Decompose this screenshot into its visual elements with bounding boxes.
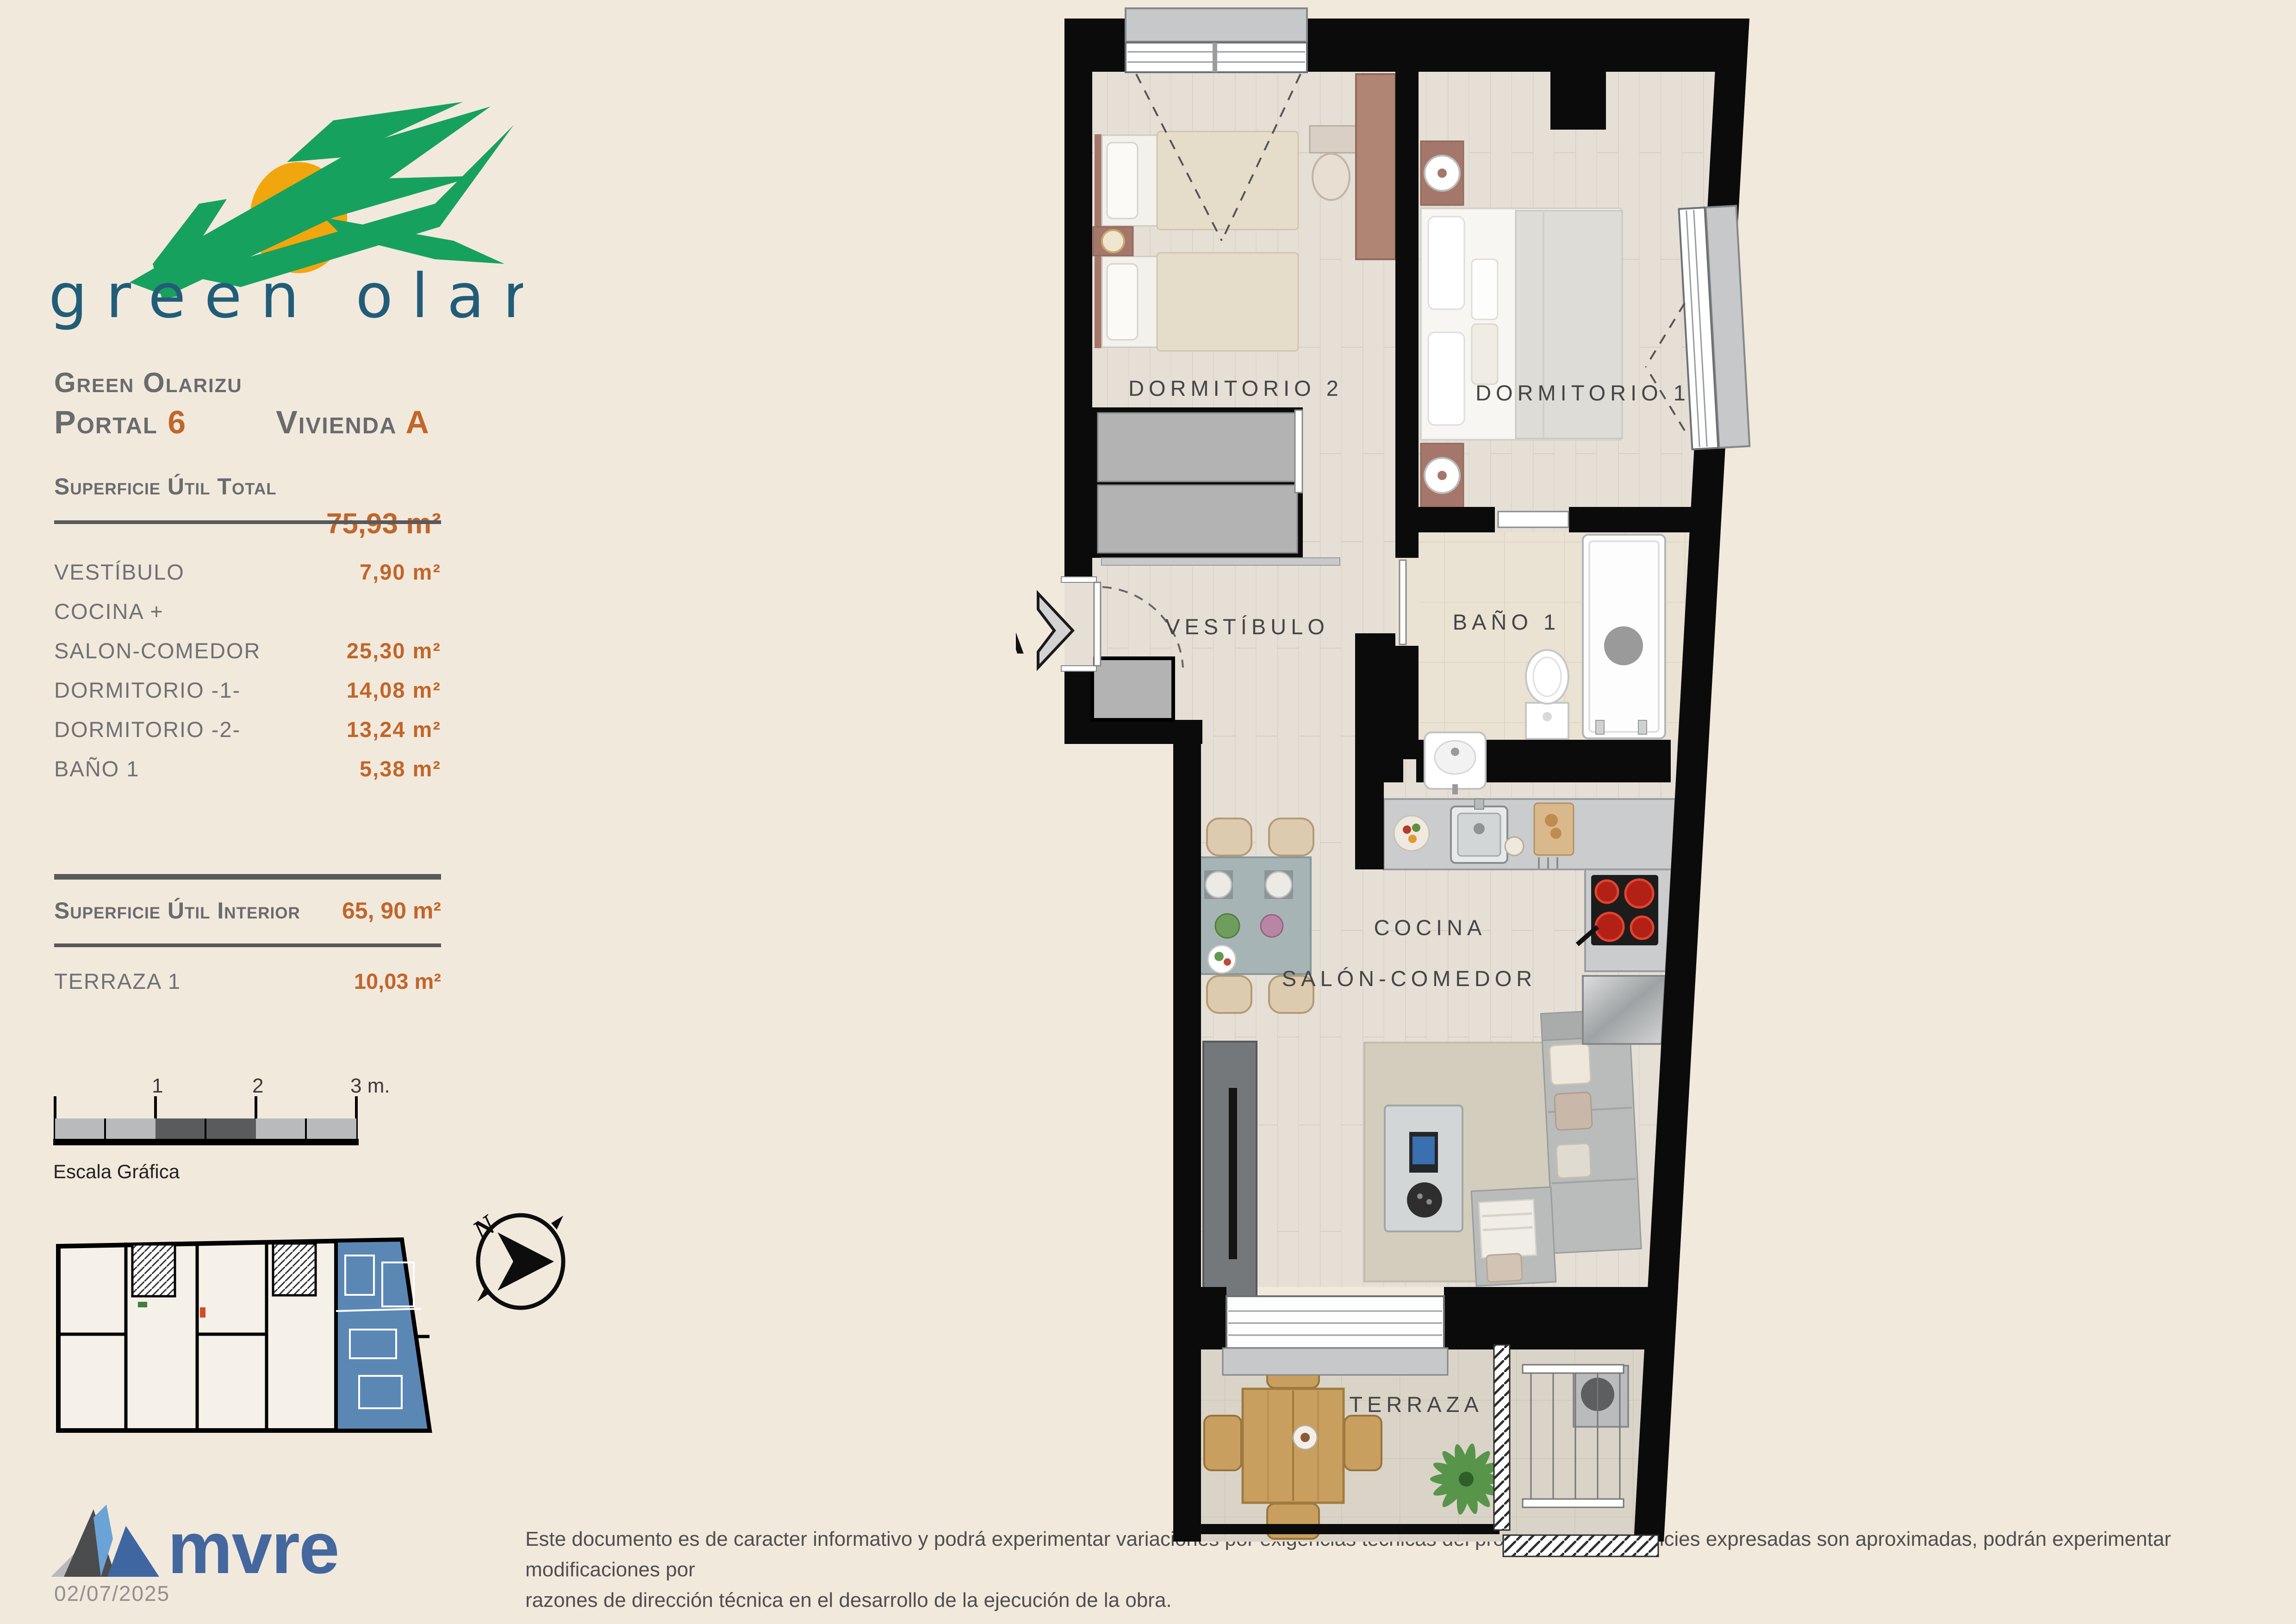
door-mark: [138, 1302, 147, 1307]
floorplan-sheet: { "logo": { "text": "green olarizu" }, "…: [0, 0, 2296, 1624]
vivienda-label: Vivienda: [276, 404, 397, 440]
entry-marker-letter: A: [1016, 614, 1025, 663]
row-label: DORMITORIO -1-: [54, 677, 241, 703]
row-label: BAÑO 1: [54, 756, 139, 781]
scale-band: [55, 1118, 356, 1139]
kitchen-sink: [1451, 799, 1507, 863]
nightstand: [1421, 141, 1463, 205]
fruit-plate: [1394, 816, 1429, 851]
row-value: 25,30 m²: [347, 638, 441, 663]
row-label: VESTÍBULO: [54, 559, 185, 585]
terrace-label: TERRAZA 1: [54, 969, 181, 993]
label-dormitorio2: DORMITORIO 2: [1128, 376, 1343, 400]
table-row: VESTÍBULO 7,90 m²: [54, 559, 441, 599]
table-row: BAÑO 1 5,38 m²: [54, 756, 441, 795]
scale-tick-2: 2: [252, 1074, 263, 1097]
surface-table: VESTÍBULO 7,90 m² COCINA + SALON-COMEDOR…: [54, 559, 441, 795]
portal-line: Portal 6 Vivienda A: [54, 404, 441, 441]
divider-rule: [54, 943, 441, 947]
label-terraza: TERRAZA: [1349, 1392, 1483, 1417]
total-surface-label: Superficie Útil Total: [54, 473, 441, 500]
coffee-table: [1385, 1106, 1462, 1231]
scale-tick-1: 1: [152, 1074, 163, 1097]
shower-tray: [1583, 535, 1665, 738]
label-cocina: COCINA: [1374, 915, 1487, 940]
fridge: [1583, 976, 1665, 1044]
door-dorm2: [1295, 410, 1302, 493]
scale-label: Escala Gráfica: [53, 1161, 180, 1182]
label-vestibulo: VESTÍBULO: [1165, 614, 1329, 639]
table-row: DORMITORIO -1- 14,08 m²: [54, 677, 441, 717]
label-bano: BAÑO 1: [1453, 610, 1560, 634]
stair-core: [273, 1243, 316, 1295]
project-name: Green Olarizu: [54, 368, 441, 397]
nightstand: [1093, 227, 1133, 256]
vivienda-value: A: [405, 404, 430, 440]
north-compass-icon: N: [465, 1204, 576, 1315]
window-dorm1: [1679, 206, 1750, 449]
row-value: 7,90 m²: [360, 559, 441, 585]
row-label: DORMITORIO -2-: [54, 717, 241, 742]
divider-rule: [54, 874, 441, 880]
title-block: Green Olarizu Portal 6 Vivienda A Superf…: [54, 368, 441, 540]
single-bed: [1095, 253, 1298, 351]
portal-label: Portal: [54, 404, 158, 440]
terrace-value: 10,03 m²: [354, 968, 441, 994]
mvre-mountain-blue: [107, 1526, 159, 1577]
toilet: [1526, 650, 1568, 739]
nightstand: [1421, 443, 1463, 507]
window-dorm2: [1126, 8, 1307, 72]
terrace-table: [1243, 1389, 1344, 1503]
double-bed: [1421, 208, 1622, 440]
plan-date: 02/07/2025: [54, 1581, 170, 1606]
row-value: 13,24 m²: [347, 717, 441, 742]
terrace-window: [1223, 1296, 1448, 1375]
mvre-logo: mvre: [51, 1504, 412, 1587]
table-row: DORMITORIO -2- 13,24 m²: [54, 717, 441, 756]
terrace-hatch-vertical: [1494, 1345, 1510, 1530]
row-label: COCINA +: [54, 599, 164, 624]
entry-closet: [1092, 658, 1173, 720]
terrace-hatch-bottom: [1503, 1535, 1658, 1556]
apartment-floor-plan: DORMITORIO 2 DORMITORIO 1 VESTÍBULO BAÑO…: [1016, 0, 1803, 1588]
label-dormitorio1: DORMITORIO 1: [1475, 381, 1690, 405]
logo-wordmark: green olarizu: [49, 261, 523, 332]
graphic-scale: 1 2 3 m. Escala Gráfica: [44, 1074, 396, 1199]
interior-surface-row: Superficie Útil Interior 65, 90 m²: [54, 897, 441, 924]
tv-unit: [1203, 1042, 1257, 1308]
single-bed: [1095, 131, 1298, 230]
disclaimer-line2: razones de dirección técnica en el desar…: [525, 1585, 2265, 1616]
developer-logo: green olarizu: [46, 65, 523, 333]
coffee-cup: [1505, 837, 1524, 856]
mvre-wordmark: mvre: [168, 1507, 339, 1587]
scale-tick-3: 3 m.: [350, 1074, 390, 1097]
door-bath: [1395, 558, 1419, 646]
bathroom-sink: [1425, 732, 1486, 794]
entry-marker: A: [1016, 593, 1073, 668]
door-mark: [200, 1307, 205, 1318]
dining-table: [1189, 857, 1311, 974]
table-row: SALON-COMEDOR 25,30 m²: [54, 638, 441, 677]
portal-value: 6: [168, 404, 187, 440]
building-key-plan: [56, 1237, 435, 1445]
terrace-surface-row: TERRAZA 1 10,03 m²: [54, 968, 441, 994]
stair-core: [132, 1244, 175, 1296]
row-value: 5,38 m²: [360, 756, 441, 781]
interior-label: Superficie Útil Interior: [54, 898, 300, 924]
wardrobe: [1356, 74, 1395, 259]
divider-rule: [54, 520, 441, 524]
interior-value: 65, 90 m²: [342, 897, 441, 924]
table-row: COCINA +: [54, 599, 441, 638]
row-label: SALON-COMEDOR: [54, 638, 261, 663]
north-label: N: [467, 1209, 502, 1246]
door-dorm1: [1498, 512, 1568, 527]
row-value: 14,08 m²: [347, 677, 441, 703]
label-salon: SALÓN-COMEDOR: [1282, 966, 1537, 991]
